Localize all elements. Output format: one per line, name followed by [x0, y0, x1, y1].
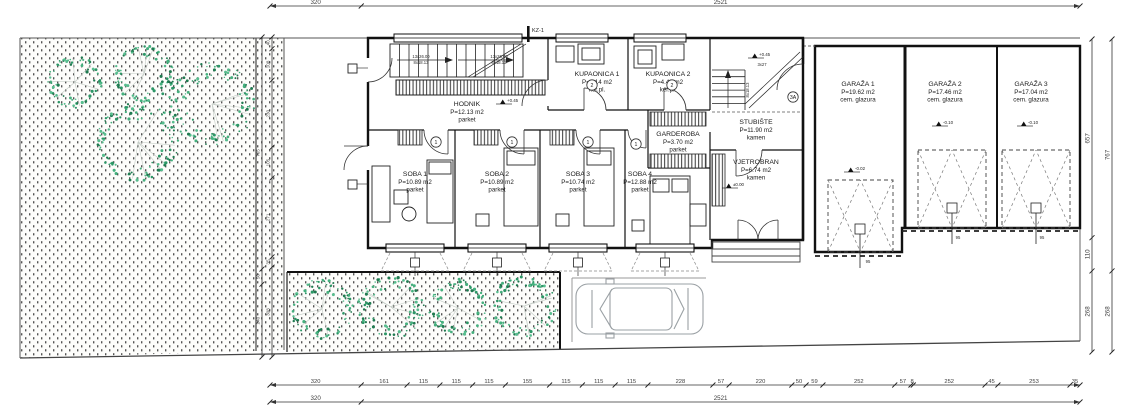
- dim-label: 8: [911, 379, 914, 385]
- dim-label: 220: [756, 379, 766, 385]
- dim-label: 268: [1105, 306, 1112, 317]
- dim-label: 115: [419, 379, 428, 385]
- dim-label: 271: [266, 213, 271, 221]
- garden-bottom: [287, 272, 560, 352]
- dim-label: 308: [266, 308, 271, 316]
- room-label-hodnik: P=12.13 m2: [450, 109, 484, 116]
- dim-label: 228: [676, 379, 686, 385]
- dim-label: 240: [256, 316, 261, 324]
- dim-label: 115: [484, 379, 493, 385]
- room-label-soba-4: SOBA 4: [628, 171, 652, 178]
- room-label-garaza-1: cem. glazura: [840, 97, 876, 104]
- dim-label: 155: [523, 379, 533, 385]
- room-label-soba-1: parket: [406, 187, 423, 194]
- room-label-soba-2: P=10.89 m2: [480, 179, 514, 186]
- room-label-soba-4: parket: [631, 187, 648, 194]
- dim-label: 57: [900, 379, 906, 385]
- room-label-garderoba: P=3.70 m2: [663, 139, 694, 146]
- room-label-kupaonica-2: KUPAONICA 2: [646, 71, 691, 78]
- dim-label: 115: [594, 379, 603, 385]
- kz-section-label: KZ-1: [532, 28, 544, 34]
- floor-plan-drawing: 3202521320161115115115155115115115228572…: [0, 0, 1138, 414]
- room-label-garaza-3: GARAŽA 3: [1014, 79, 1047, 88]
- annotation: 13x26.00: [490, 54, 508, 59]
- dim-label: 35: [266, 259, 271, 265]
- room-label-soba-1: SOBA 1: [403, 171, 427, 178]
- room-label-garaza-1: P=19.62 m2: [841, 89, 875, 96]
- dim-label: 108: [266, 60, 271, 68]
- level-marker-label: -0.02: [855, 166, 866, 171]
- dim-label: 57: [718, 379, 724, 385]
- door-bubble-label: 1: [587, 140, 590, 146]
- dim-label: 40: [266, 40, 271, 46]
- level-marker-label: ±0.00: [733, 182, 745, 187]
- door-bubble-label: 1: [435, 140, 438, 146]
- room-label-garaza-2: cem. glazura: [927, 97, 963, 104]
- dim-label: 105: [266, 158, 271, 166]
- annotation: 13x26.00: [412, 54, 430, 59]
- dim-label: 115: [452, 379, 461, 385]
- room-label-soba-4: P=12.88 m2: [623, 179, 657, 186]
- door-bubble-label: 3A: [790, 95, 797, 101]
- room-label-garaza-3: P=17.04 m2: [1014, 89, 1048, 96]
- annotation: 3x27: [757, 62, 767, 67]
- dim-label: 320: [310, 0, 321, 6]
- dim-label: 268: [1085, 306, 1092, 317]
- level-marker-label: -0.10: [943, 120, 954, 125]
- annotation: 8x18.13: [745, 82, 750, 98]
- dim-label: 252: [854, 379, 864, 385]
- room-label-garaza-3: cem. glazura: [1013, 97, 1049, 104]
- room-label-soba-1: P=10.89 m2: [398, 179, 432, 186]
- room-label-stubiste: kamen: [747, 135, 766, 142]
- dim-label: 320: [311, 379, 321, 385]
- door-bubble-label: 2: [591, 83, 594, 89]
- room-label-soba-3: P=10.74 m2: [561, 179, 595, 186]
- annotation: 8x18.13: [492, 60, 508, 65]
- dim-label: 110: [1085, 249, 1092, 259]
- room-label-soba-2: parket: [488, 187, 505, 194]
- room-label-garaza-2: P=17.46 m2: [928, 89, 962, 96]
- level-marker-label: -0.10: [1028, 120, 1039, 125]
- dim-label: 2521: [714, 395, 728, 402]
- dim-label: 2521: [714, 0, 728, 6]
- dim-label: 161: [379, 379, 389, 385]
- room-label-hodnik: HODNIK: [454, 101, 481, 108]
- dim-label: 657: [1085, 133, 1092, 144]
- dim-label: 50: [796, 379, 802, 385]
- car-icon: [576, 279, 703, 338]
- garage-outline: [803, 46, 1080, 256]
- room-label-garaza-1: GARAŽA 1: [841, 79, 874, 88]
- dim-label: 50: [256, 274, 261, 280]
- room-label-vjetrobran: VJETROBRAN: [733, 159, 779, 166]
- level-marker-label: +0.45: [507, 98, 519, 103]
- room-label-soba-2: SOBA 2: [485, 171, 509, 178]
- room-label-kupaonica-1: KUPAONICA 1: [575, 71, 620, 78]
- dim-label: 765: [256, 149, 261, 157]
- annotation: 95: [956, 235, 961, 240]
- door-bubble-label: 1: [511, 140, 514, 146]
- room-label-soba-3: SOBA 3: [566, 171, 590, 178]
- entrance-porch: [712, 242, 800, 262]
- floor-plan-canvas: 3202521320161115115115155115115115228572…: [0, 0, 1138, 414]
- dim-label: 230: [266, 109, 271, 117]
- dim-label: 253: [1029, 379, 1039, 385]
- dim-label: 115: [561, 379, 570, 385]
- dim-label: 252: [944, 379, 954, 385]
- room-label-garaza-2: GARAŽA 2: [928, 79, 961, 88]
- kz-section-mark: [527, 26, 530, 42]
- dim-label: 115: [627, 379, 636, 385]
- dim-label: 320: [310, 395, 321, 402]
- dim-label: 59: [811, 379, 817, 385]
- annotation: 8x18.13: [414, 60, 430, 65]
- room-label-stubiste: P=11.90 m2: [739, 127, 773, 134]
- door-bubble-label: 1: [635, 142, 638, 148]
- room-label-vjetrobran: P=6.74 m2: [741, 167, 772, 174]
- room-label-vjetrobran: kamen: [747, 175, 766, 182]
- door-bubble-label: 2: [671, 83, 674, 89]
- dim-label: 45: [988, 379, 994, 385]
- room-label-garderoba: parket: [669, 147, 686, 154]
- annotation: 95: [1040, 235, 1045, 240]
- room-label-soba-3: parket: [569, 187, 586, 194]
- annotation: 95: [866, 259, 871, 264]
- dim-label: 767: [1105, 149, 1112, 160]
- room-label-hodnik: parket: [458, 117, 475, 124]
- level-marker-label: +0.45: [759, 52, 771, 57]
- room-label-garderoba: GARDEROBA: [656, 131, 700, 138]
- room-label-stubiste: STUBIŠTE: [739, 117, 773, 126]
